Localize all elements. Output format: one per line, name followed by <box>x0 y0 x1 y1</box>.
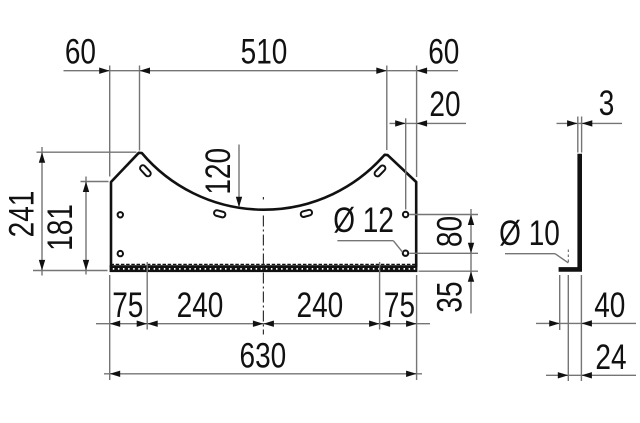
svg-text:510: 510 <box>241 31 288 71</box>
svg-text:Ø 10: Ø 10 <box>499 213 560 253</box>
svg-text:80: 80 <box>429 216 469 247</box>
svg-text:181: 181 <box>40 204 80 251</box>
svg-text:60: 60 <box>65 31 96 71</box>
svg-text:40: 40 <box>594 285 625 325</box>
svg-text:241: 241 <box>1 191 41 238</box>
svg-text:75: 75 <box>112 285 143 325</box>
svg-text:630: 630 <box>240 335 287 375</box>
svg-text:120: 120 <box>198 148 238 195</box>
svg-text:35: 35 <box>429 281 469 312</box>
svg-text:240: 240 <box>297 285 344 325</box>
svg-text:3: 3 <box>599 83 615 123</box>
svg-text:Ø 12: Ø 12 <box>333 200 394 240</box>
svg-text:24: 24 <box>595 337 626 377</box>
svg-text:75: 75 <box>384 285 415 325</box>
svg-text:240: 240 <box>177 285 224 325</box>
svg-text:20: 20 <box>429 84 460 124</box>
svg-text:60: 60 <box>428 31 459 71</box>
